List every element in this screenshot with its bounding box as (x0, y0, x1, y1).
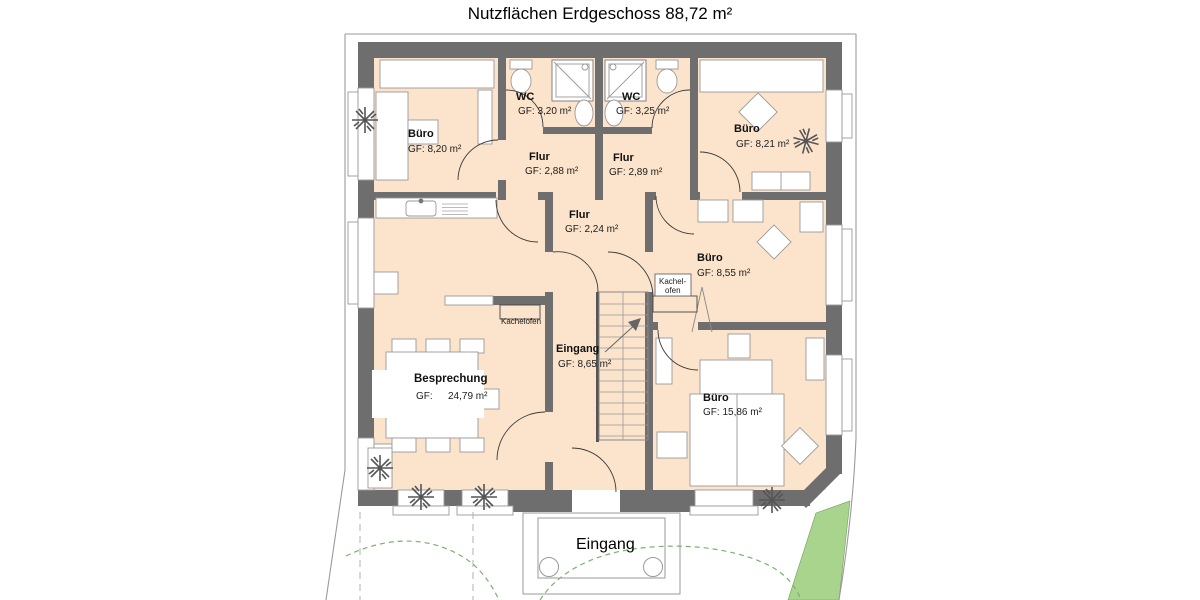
kachelofen-label-line1: Kachel- (659, 277, 686, 286)
entrance-porch-label: Eingang (576, 536, 635, 554)
room-label-flur-middle: Flur (569, 209, 590, 221)
room-area-value-besprechung: 24,79 m² (448, 391, 487, 402)
floorplan-drawing (0, 0, 1200, 600)
room-label-buero-top-right: Büro (734, 123, 760, 135)
room-area-eingang-hall: GF: 8,65 m² (558, 359, 611, 370)
room-label-besprechung: Besprechung (414, 373, 488, 385)
room-label-wc-left: WC (516, 91, 534, 103)
site-dashed-lines (360, 512, 473, 600)
room-area-buero-bottom-right: GF: 15,86 m² (703, 407, 762, 418)
room-area-flur-right: GF: 2,89 m² (609, 167, 662, 178)
room-label-eingang-hall: Eingang (556, 343, 599, 355)
room-area-wc-left: GF: 3,20 m² (518, 106, 571, 117)
room-area-flur-left: GF: 2,88 m² (525, 166, 578, 177)
room-area-buero-top-right: GF: 8,21 m² (736, 139, 789, 150)
room-area-buero-top-left: GF: 8,20 m² (408, 144, 461, 155)
room-label-buero-middle: Büro (697, 252, 723, 264)
room-label-flur-left: Flur (529, 151, 550, 163)
room-area-label-besprechung: GF: (416, 391, 433, 402)
plan-title: Nutzflächen Erdgeschoss 88,72 m² (0, 4, 1200, 24)
room-area-flur-middle: GF: 2,24 m² (565, 224, 618, 235)
kachelofen-label-line2: ofen (665, 286, 681, 295)
room-area-wc-right: GF: 3,25 m² (616, 106, 669, 117)
room-label-flur-right: Flur (613, 152, 634, 164)
room-area-buero-middle: GF: 8,55 m² (697, 268, 750, 279)
floorplan-page: Nutzflächen Erdgeschoss 88,72 m² Büro GF… (0, 0, 1200, 600)
site-green-area (788, 501, 850, 600)
room-label-wc-right: WC (622, 91, 640, 103)
room-label-buero-top-left: Büro (408, 128, 434, 140)
kachelofen-label-inline: Kachelofen (501, 317, 541, 326)
room-label-buero-bottom-right: Büro (703, 392, 729, 404)
